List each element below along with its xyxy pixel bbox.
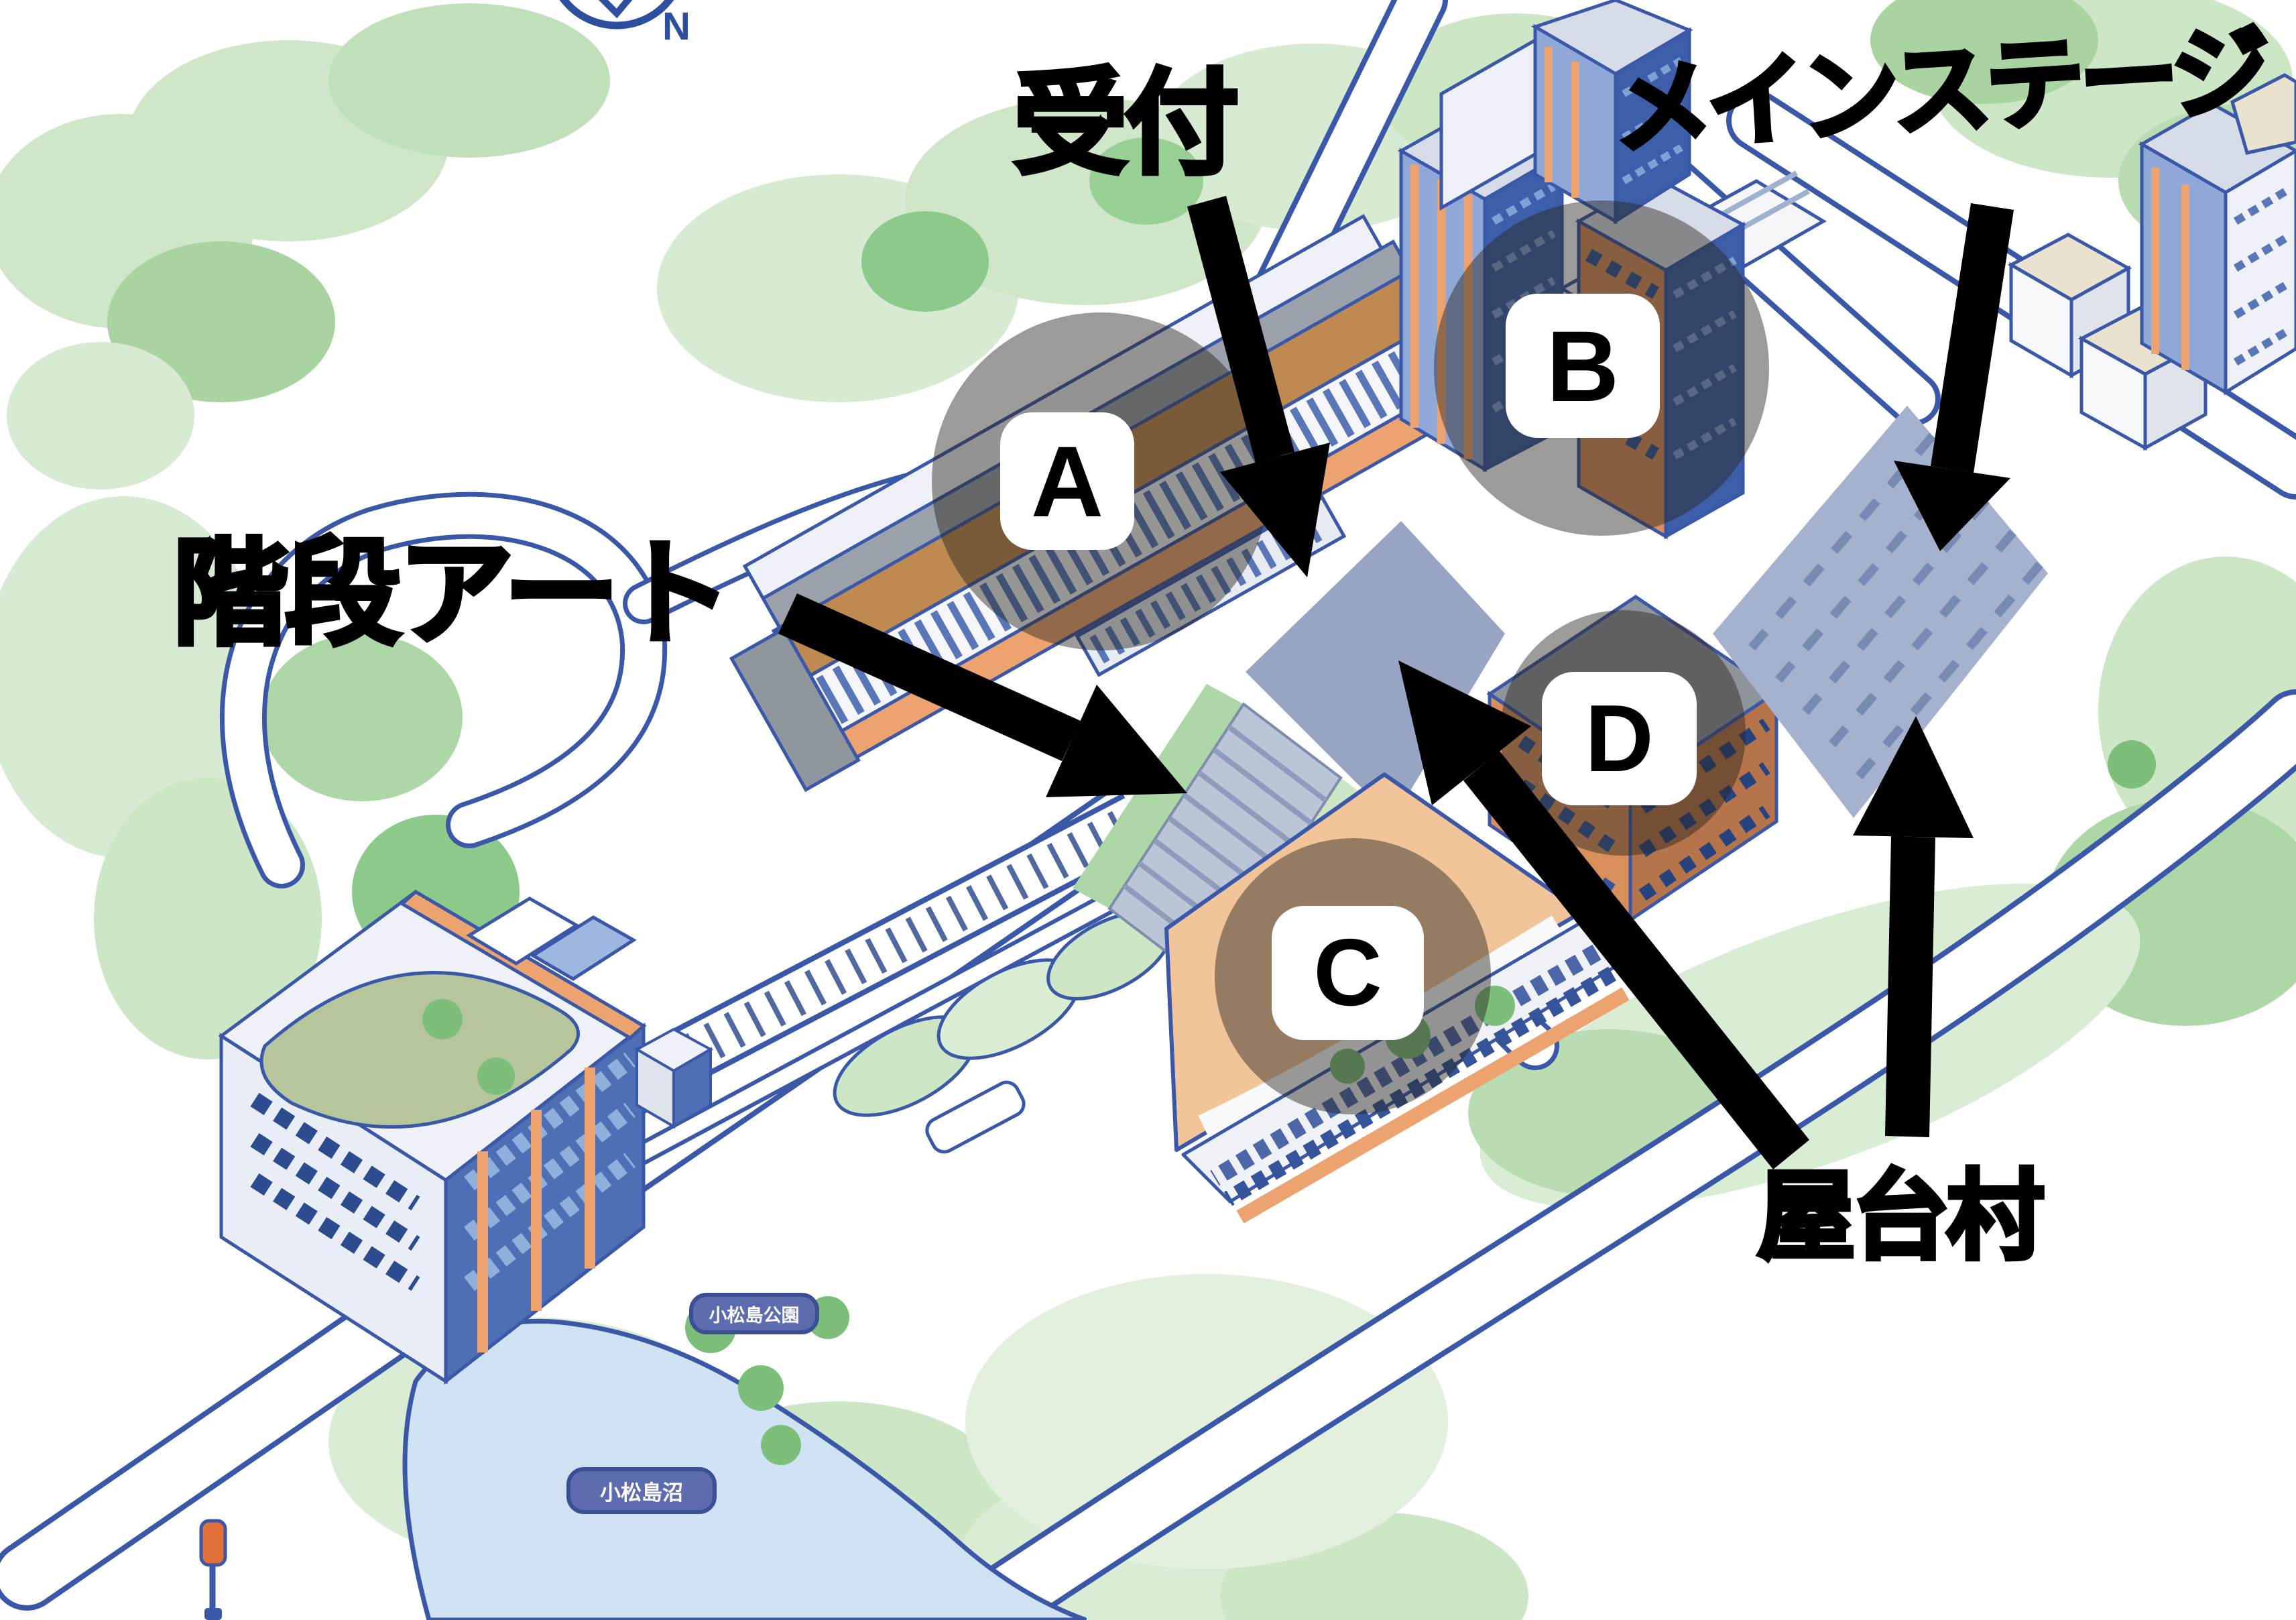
- yatai-village-label: 屋台村: [1758, 1168, 2041, 1265]
- stair-art-label: 階段アート: [173, 536, 729, 652]
- compass-north-label: N: [662, 4, 690, 49]
- marker-letter-b: B: [1547, 316, 1619, 416]
- reception-label: 受付: [1014, 67, 1236, 181]
- marker-chip-c: C: [1272, 906, 1424, 1040]
- marker-chip-a: A: [1000, 412, 1134, 550]
- marker-chip-d: D: [1542, 672, 1697, 805]
- kiosk: [637, 1029, 711, 1126]
- campus-map: A B C D 受付 メインステージ 階段アート 屋台村 N 小松島公園 小松島…: [0, 0, 2296, 1620]
- map-illustration: [0, 0, 2296, 1620]
- marker-letter-d: D: [1585, 691, 1654, 787]
- pond-name-pill: 小松島沼: [566, 1467, 717, 1514]
- park-name-pill: 小松島公園: [689, 1293, 819, 1334]
- marker-letter-c: C: [1313, 925, 1382, 1021]
- marker-chip-b: B: [1506, 294, 1660, 438]
- marker-letter-a: A: [1031, 431, 1103, 532]
- traffic-light-icon: [201, 1521, 225, 1620]
